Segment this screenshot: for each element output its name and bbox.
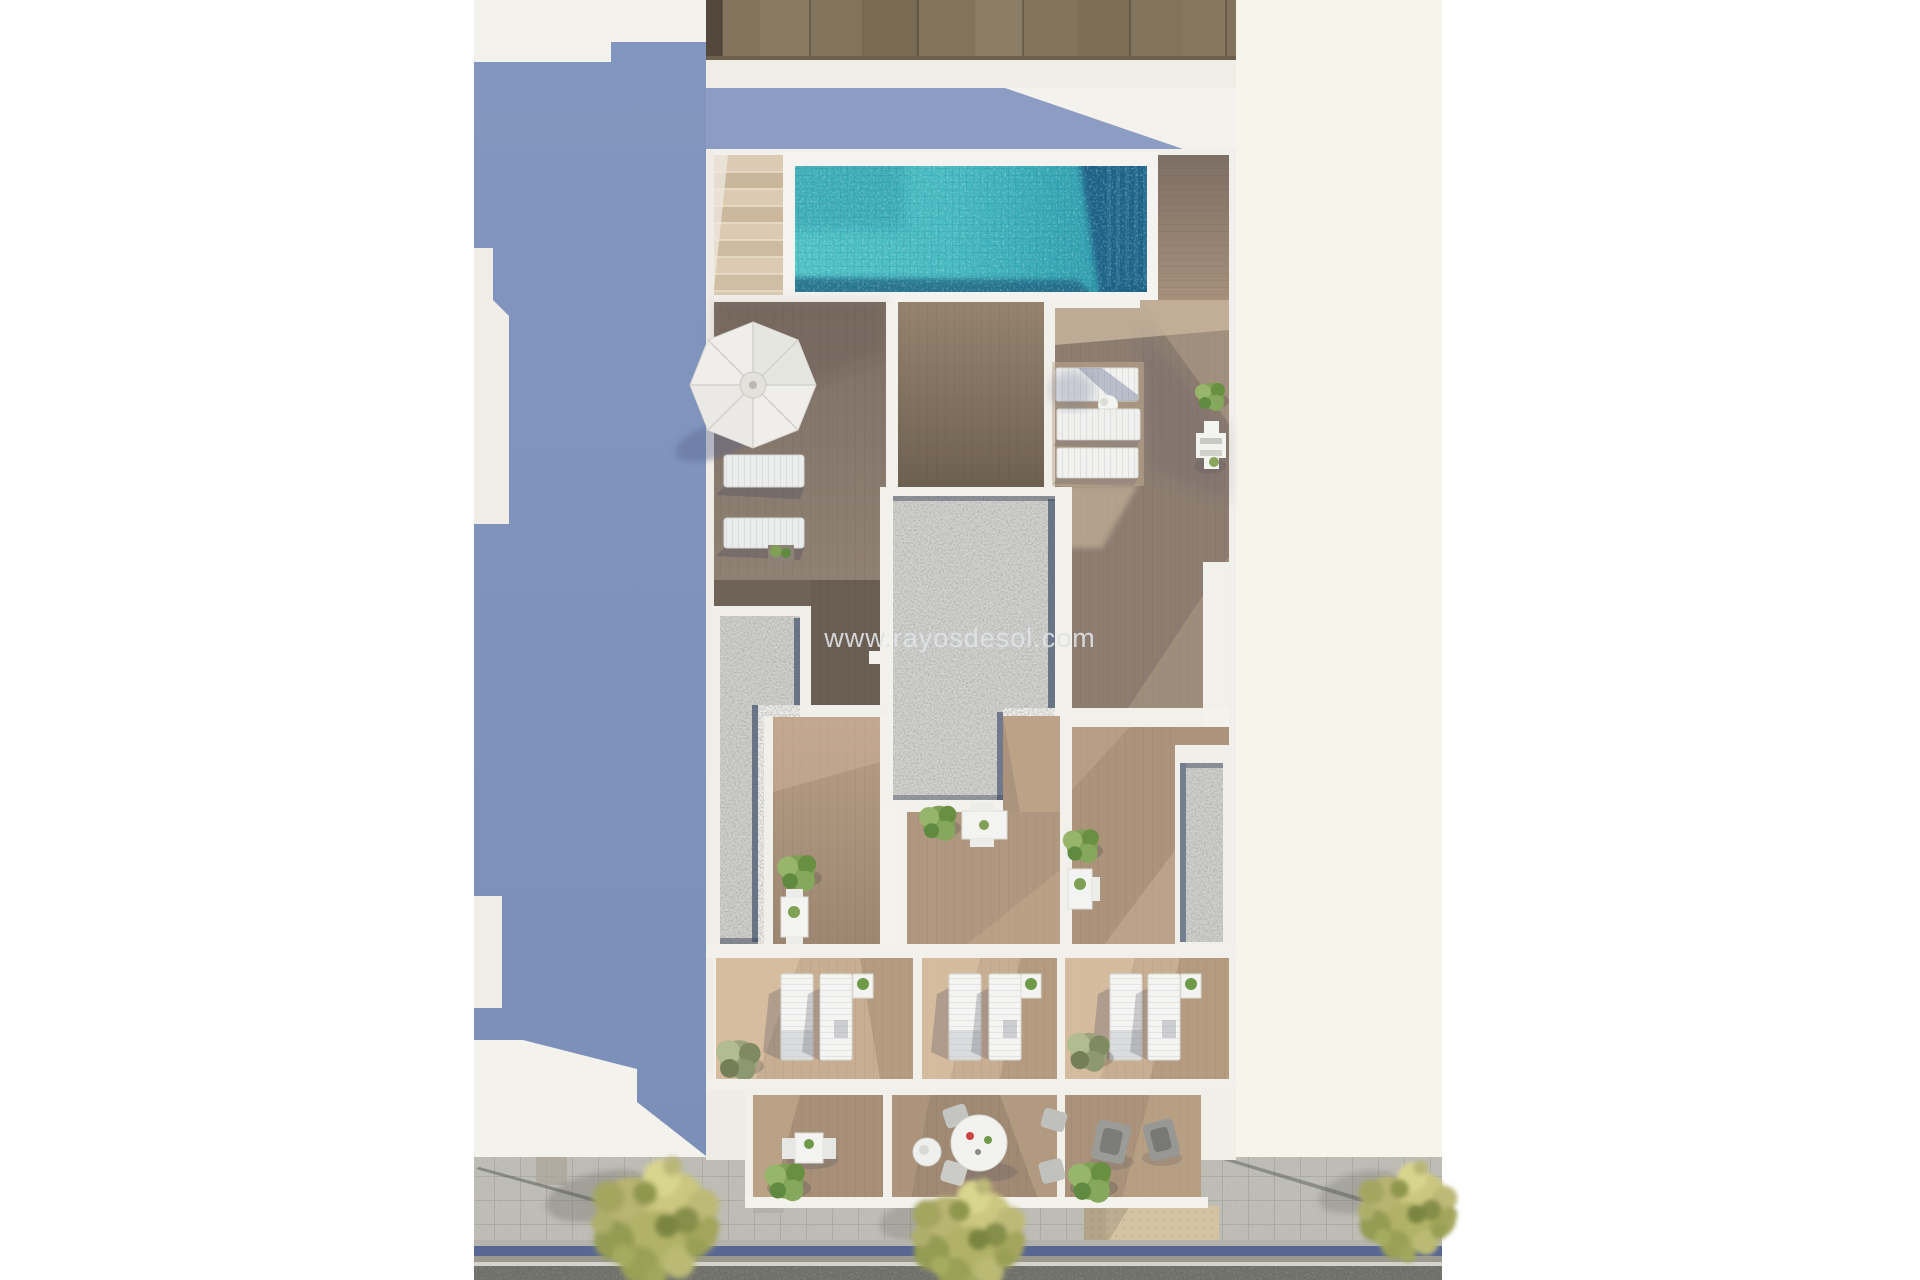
svg-text:www.rayosdesol.com: www.rayosdesol.com: [823, 623, 1096, 653]
